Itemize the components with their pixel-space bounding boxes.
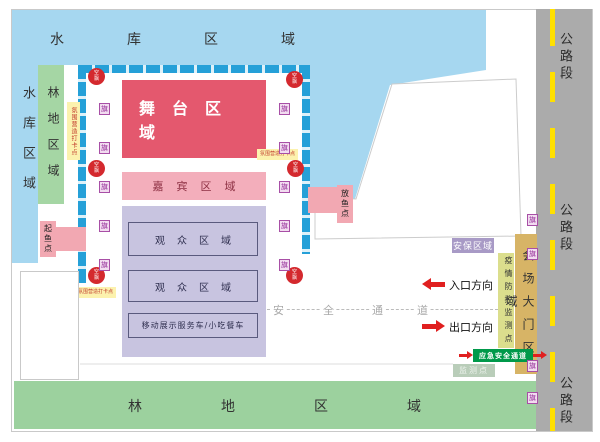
exit-direction-label: 出口方向 bbox=[449, 319, 493, 335]
checkin-point-label-left: 氛围营造打卡点 bbox=[75, 287, 116, 298]
safety-passage-char-4: 道 bbox=[415, 302, 430, 318]
exit-arrow-icon bbox=[422, 320, 445, 332]
safety-passage-char-2: 全 bbox=[321, 302, 336, 318]
flag-badge: 旗 bbox=[527, 360, 538, 372]
guest-area: 嘉宾区域 bbox=[122, 172, 266, 200]
checkin-point-label-right: 氛围营造打卡点 bbox=[257, 149, 298, 160]
venue-border-top bbox=[78, 65, 310, 73]
flag-badge: 旗 bbox=[99, 259, 110, 271]
monitor-point-label: 监测点 bbox=[453, 364, 495, 377]
reservoir-left-label: 水库区域 bbox=[18, 86, 37, 206]
balloon-badge: 空飘 bbox=[286, 71, 303, 88]
empty-plot-outline bbox=[20, 271, 79, 380]
flag-badge: 旗 bbox=[527, 214, 538, 226]
entrance-arrow-icon bbox=[422, 278, 445, 290]
emergency-arrow-left-icon bbox=[459, 351, 473, 359]
fish-release-point-label: 放鱼点 bbox=[337, 185, 353, 223]
venue-border-right bbox=[302, 65, 310, 254]
stage-area: 舞台区域 bbox=[122, 80, 266, 158]
highway-label-2: 公路段 bbox=[556, 203, 574, 254]
flag-badge: 旗 bbox=[279, 259, 290, 271]
flag-badge: 旗 bbox=[99, 220, 110, 232]
flag-badge: 旗 bbox=[527, 248, 538, 260]
reservoir-top-label: 水库区域 bbox=[50, 29, 358, 49]
audience-area-1: 观众区域 bbox=[128, 222, 258, 256]
balloon-badge: 空飘 bbox=[88, 68, 105, 85]
fish-lift-point-label: 起鱼点 bbox=[40, 221, 56, 257]
flag-badge: 旗 bbox=[279, 142, 290, 154]
highway-label-1: 公路段 bbox=[556, 32, 574, 83]
safety-passage-char-3: 通 bbox=[370, 302, 385, 318]
audience-area-2: 观众区域 bbox=[128, 270, 258, 302]
flag-badge: 旗 bbox=[527, 392, 538, 404]
forest-left-label: 林地区域 bbox=[45, 86, 62, 190]
venue-map: 公路段 公路段 公路段 水库区域 水库区域 林地区域 林地区域 舞台区域 嘉宾区… bbox=[0, 0, 600, 442]
fish-lift-point-area bbox=[56, 227, 86, 251]
entrance-direction-label: 入口方向 bbox=[449, 277, 493, 293]
balloon-badge: 空飘 bbox=[88, 160, 105, 177]
security-area-label: 安保区域 bbox=[452, 238, 494, 253]
emergency-passage-bar: 应急安全通道 bbox=[473, 349, 533, 362]
highway-label-3: 公路段 bbox=[556, 376, 574, 427]
safety-passage-char-1: 安 bbox=[271, 302, 286, 318]
emergency-arrow-right-icon bbox=[533, 351, 547, 359]
checkin-point-label-vertical: 氛围营造打卡点 bbox=[67, 102, 80, 160]
fish-release-point-area bbox=[308, 187, 337, 213]
flag-badge: 旗 bbox=[279, 220, 290, 232]
flag-badge: 旗 bbox=[279, 103, 290, 115]
flag-badge: 旗 bbox=[99, 142, 110, 154]
flag-badge: 旗 bbox=[99, 103, 110, 115]
flag-badge: 旗 bbox=[279, 181, 290, 193]
flag-badge: 旗 bbox=[99, 181, 110, 193]
balloon-badge: 空飘 bbox=[287, 160, 304, 177]
forest-bottom-label: 林地区域 bbox=[128, 396, 500, 416]
vehicle-area: 移动展示服务车/小吃餐车 bbox=[128, 313, 258, 338]
